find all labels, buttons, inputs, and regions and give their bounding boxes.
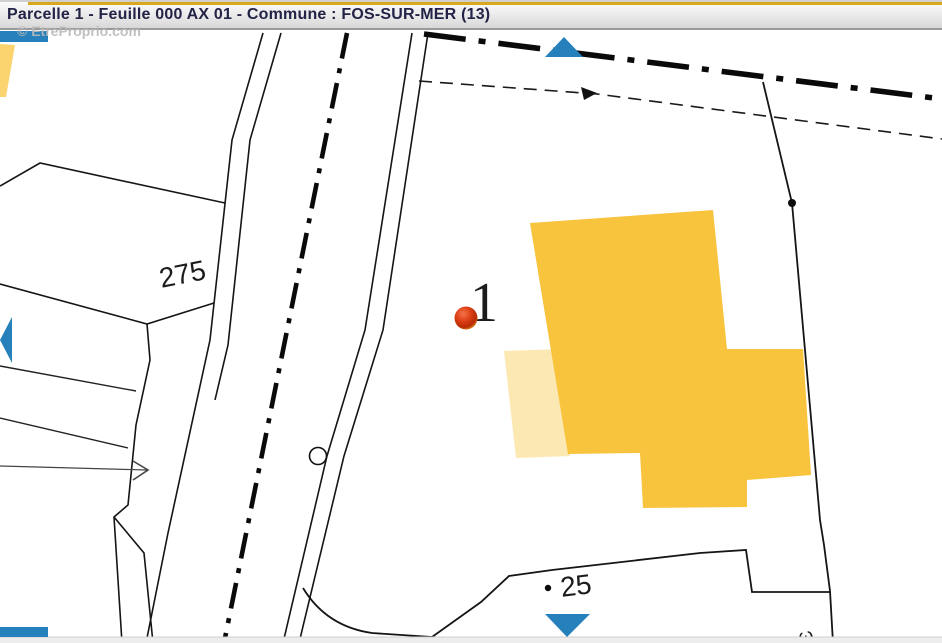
pan-corner-bottom-left-icon[interactable] <box>0 627 48 637</box>
boundary-point-dot <box>788 199 796 207</box>
bottom-strip <box>0 637 942 643</box>
map-background <box>0 30 942 643</box>
survey-point-circle <box>310 448 327 465</box>
cadastral-map[interactable]: 275 25 1 ω <box>0 30 942 643</box>
boundary-point-dot-south <box>545 585 551 591</box>
cadastral-viewer: Parcelle 1 - Feuille 000 AX 01 - Commune… <box>0 0 942 643</box>
title-bar: Parcelle 1 - Feuille 000 AX 01 - Commune… <box>0 0 942 30</box>
parcel-marker-dot <box>455 307 478 330</box>
title-bar-accent-line <box>28 2 942 5</box>
page-title: Parcelle 1 - Feuille 000 AX 01 - Commune… <box>7 6 490 24</box>
parcel-label-25: 25 <box>559 568 594 603</box>
watermark: © EtreProprio.com <box>17 23 141 39</box>
